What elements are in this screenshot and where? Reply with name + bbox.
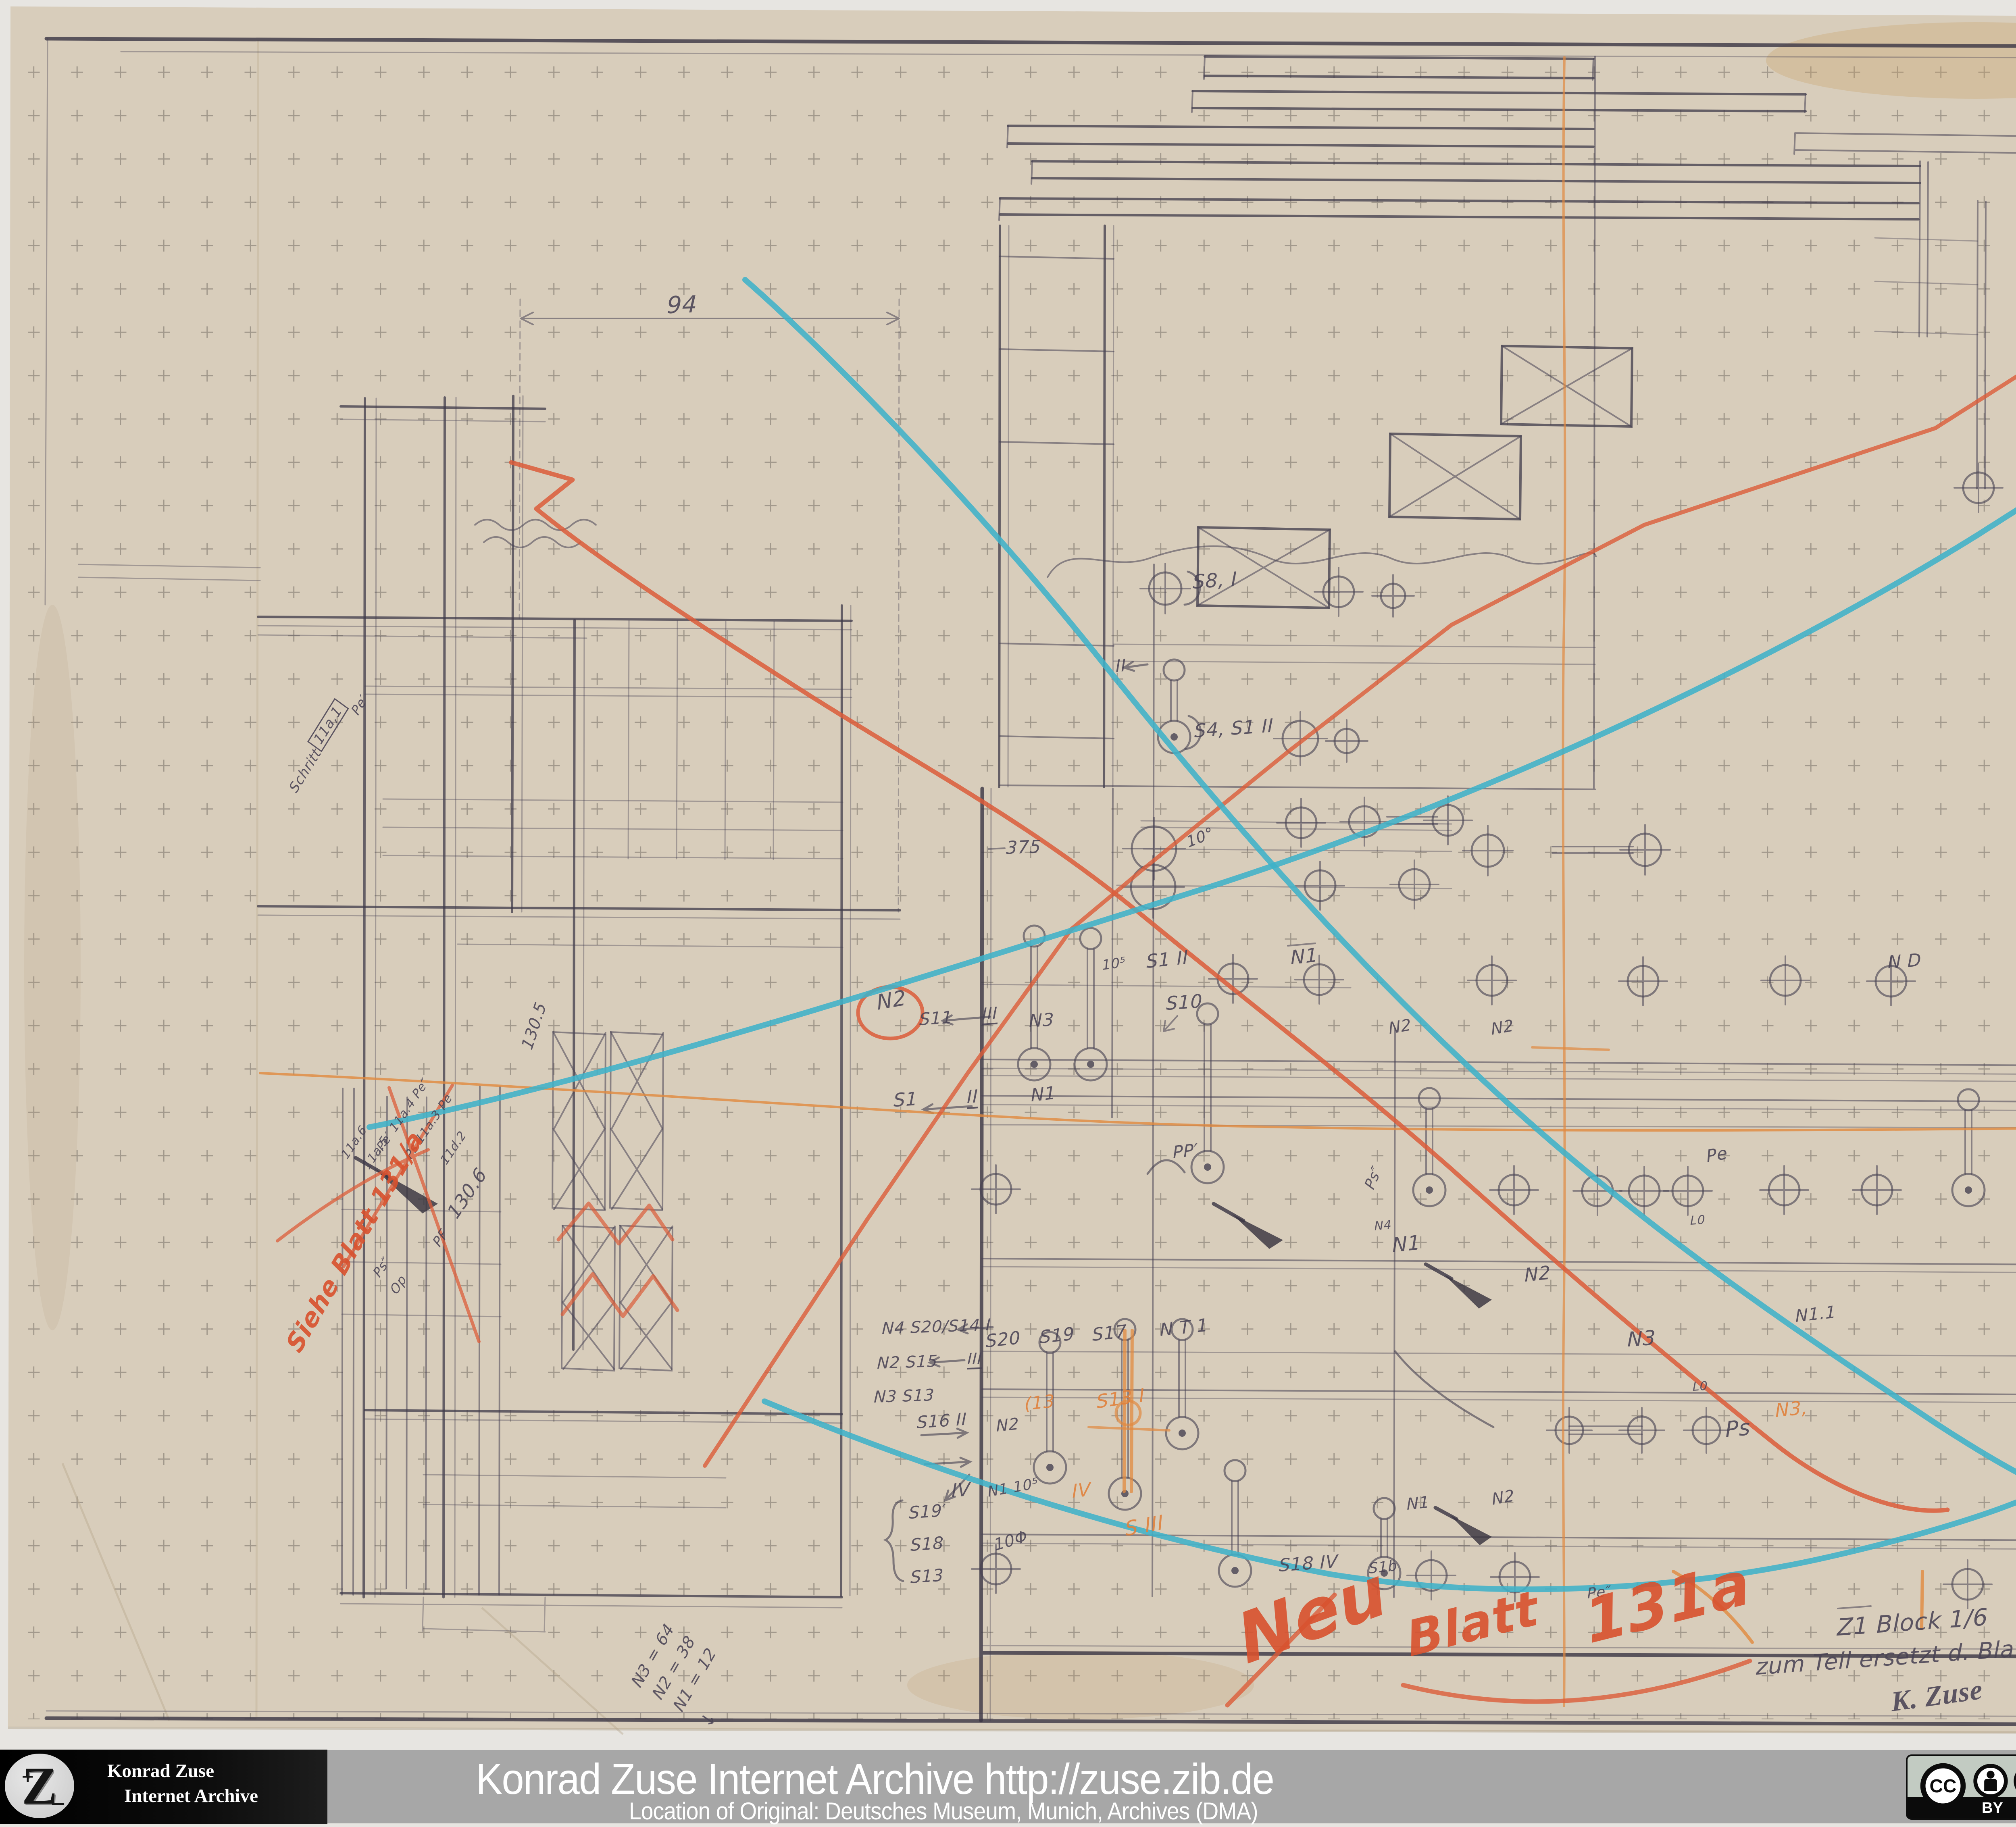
cc-by-person-icon [1973,1763,2008,1799]
logo-text-line1: Konrad Zuse [107,1760,214,1782]
archive-location: Location of Original: Deutsches Museum, … [629,1797,1258,1825]
logo-plus-icon: + [21,1767,35,1786]
footer-bar: Z + − Konrad Zuse Internet Archive Konra… [0,1750,2016,1823]
cc-nc-icon: $ [2013,1763,2016,1799]
logo-minus-icon: − [50,1792,66,1815]
cc-by-label: BY [1982,1800,2003,1817]
drawing-scan [0,0,2016,1823]
paper-sheet [8,6,2016,1734]
kzia-logo-ellipse: Z + − [5,1754,74,1818]
archive-title: Konrad Zuse Internet Archive http://zuse… [476,1754,1274,1804]
svg-text:CC: CC [1929,1775,1956,1796]
cc-license-badge: BY NC SA CC $ [1906,1754,2016,1820]
cc-icon: CC [1920,1762,1966,1809]
logo-text-line2: Internet Archive [124,1785,258,1807]
dot-grid [16,56,2016,1719]
scanned-document-stage: 94375S8, IIIS4, S1 II10°S2 IIIS1 IIS10N1… [0,0,2016,1823]
kzia-logo-box: Z + − Konrad Zuse Internet Archive [0,1750,327,1824]
